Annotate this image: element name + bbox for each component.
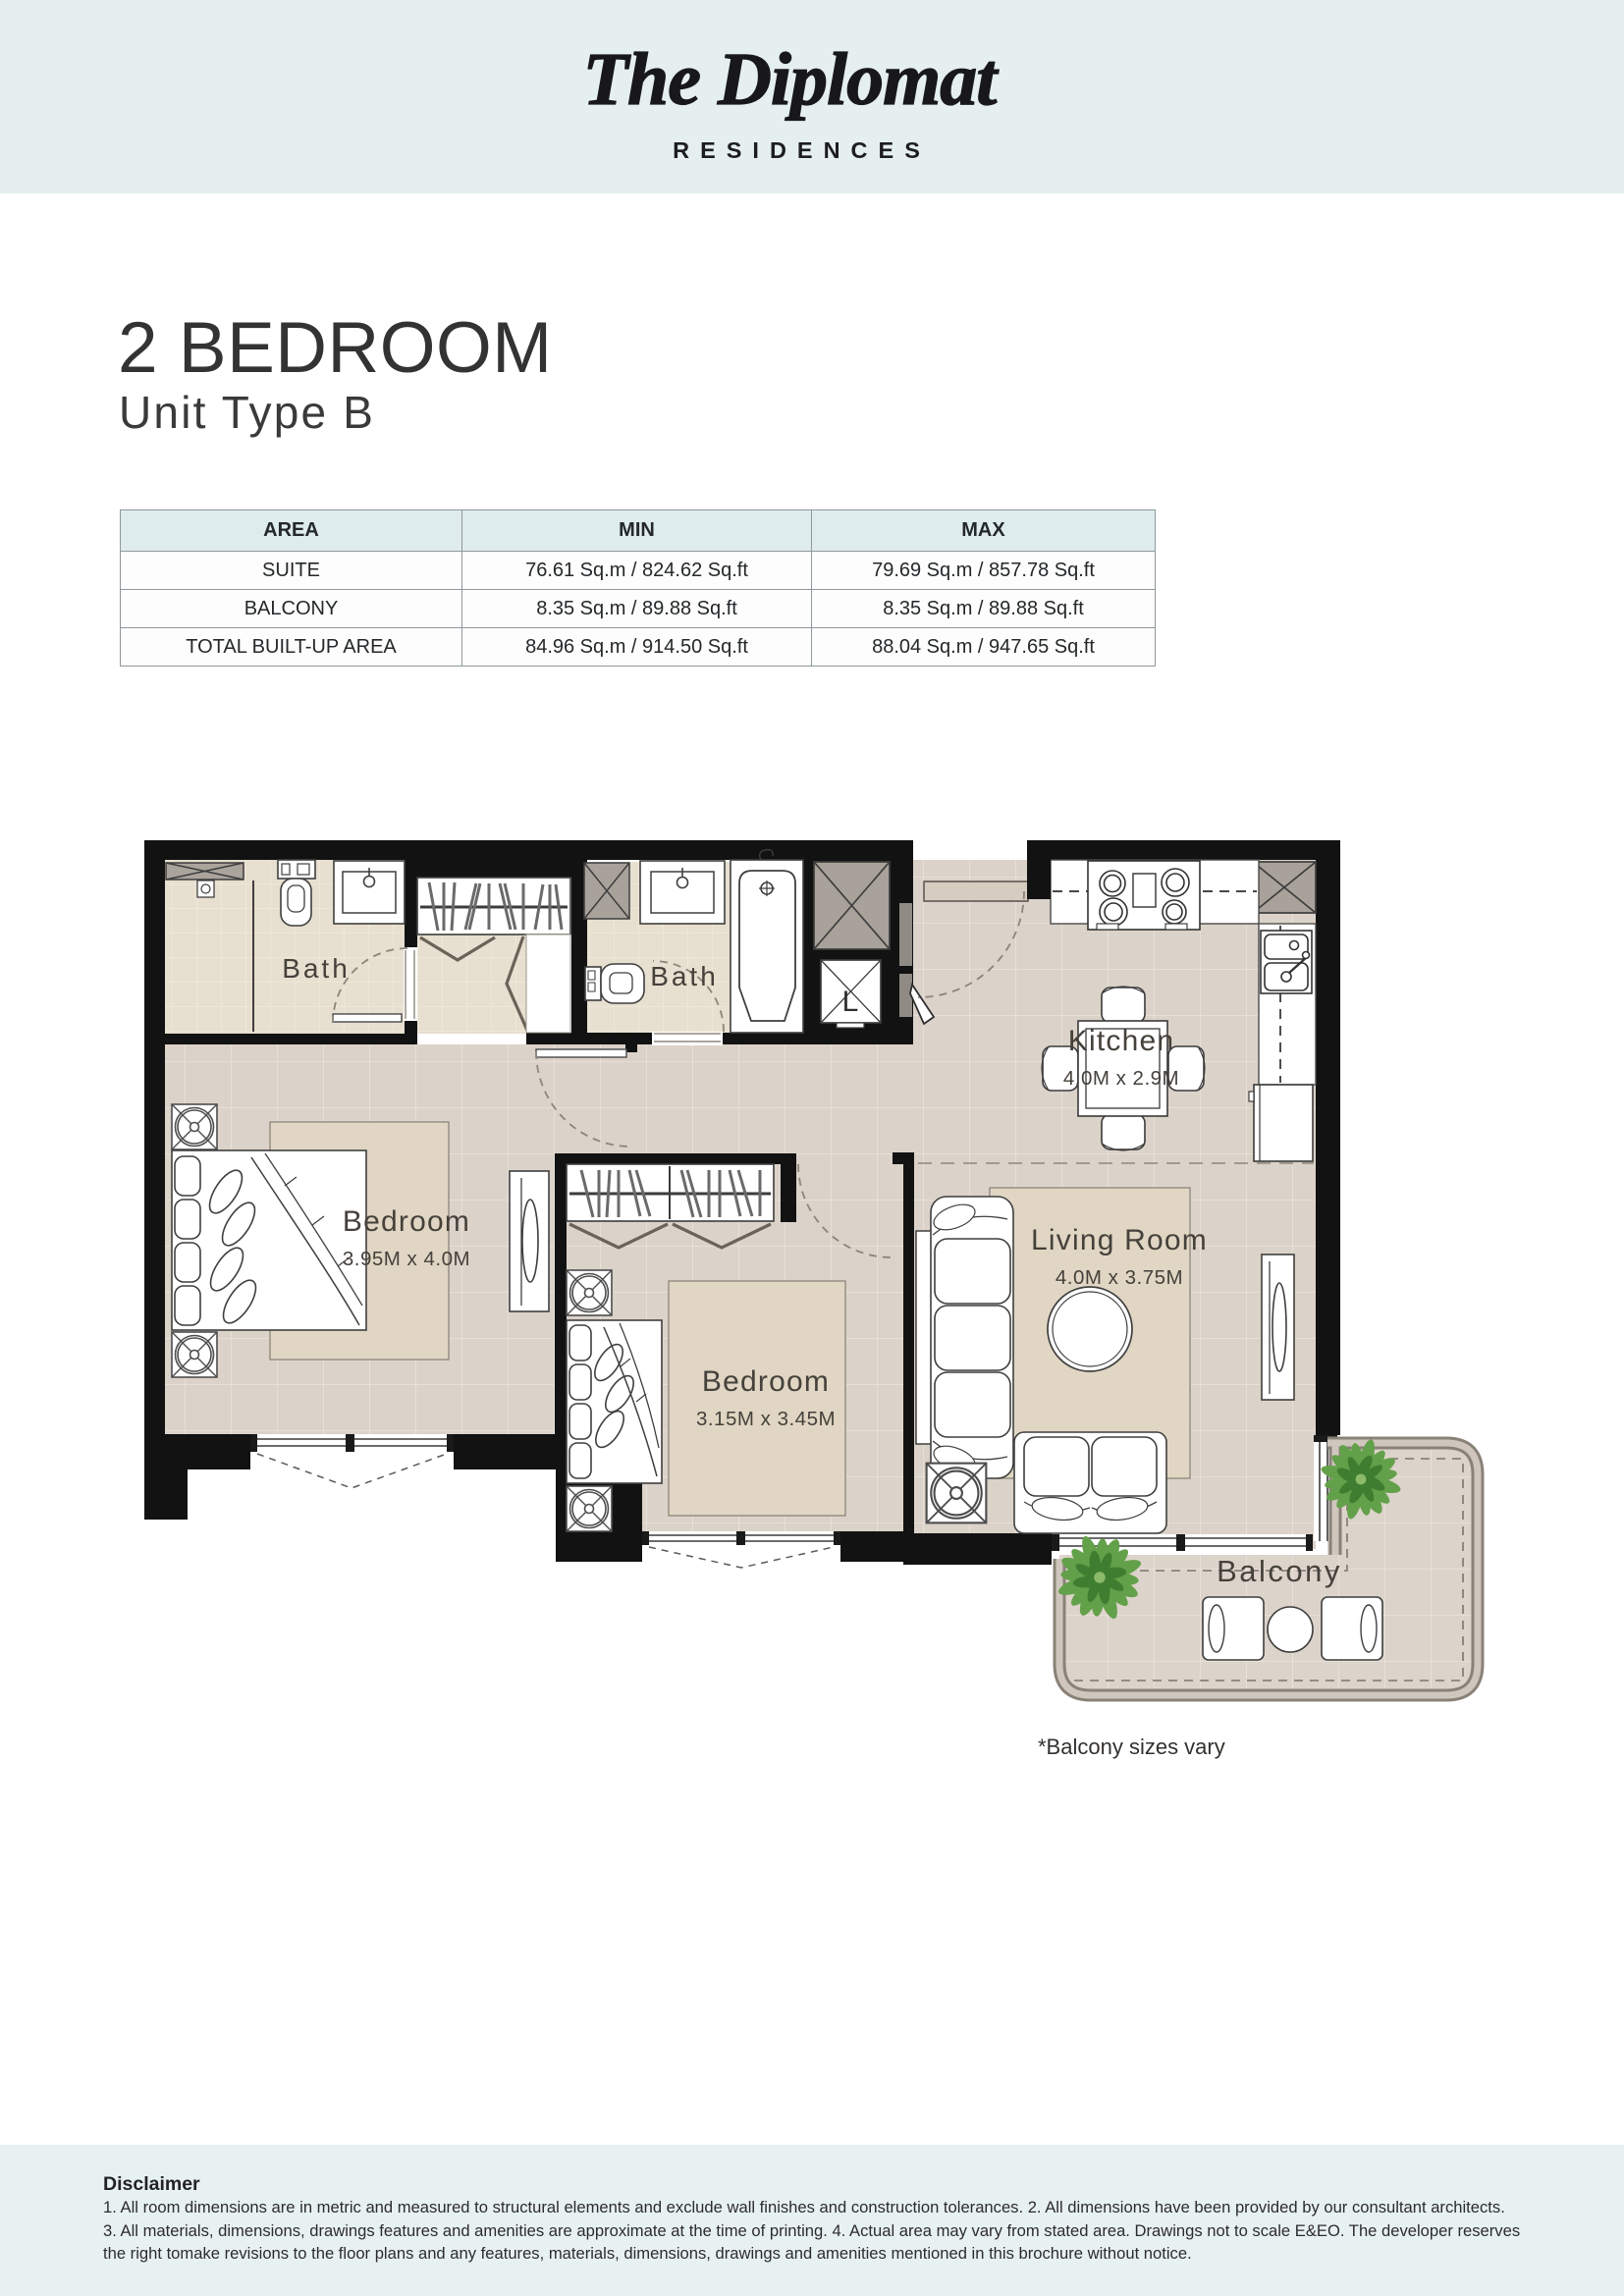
svg-text:3.95M x 4.0M: 3.95M x 4.0M [343,1248,470,1270]
svg-text:L: L [842,986,859,1018]
svg-text:Living Room: Living Room [1031,1224,1208,1256]
svg-text:Balcony: Balcony [1217,1554,1342,1588]
svg-text:3.15M x 3.45M: 3.15M x 3.45M [696,1408,836,1430]
svg-text:4.0M x 3.75M: 4.0M x 3.75M [1056,1266,1183,1289]
svg-text:Bedroom: Bedroom [702,1365,830,1398]
svg-text:Bath: Bath [282,953,351,984]
svg-text:4.0M x 2.9M: 4.0M x 2.9M [1063,1067,1179,1090]
svg-text:Bedroom: Bedroom [343,1205,470,1238]
svg-text:Kitchen: Kitchen [1068,1025,1174,1057]
svg-text:Bath: Bath [650,961,719,991]
